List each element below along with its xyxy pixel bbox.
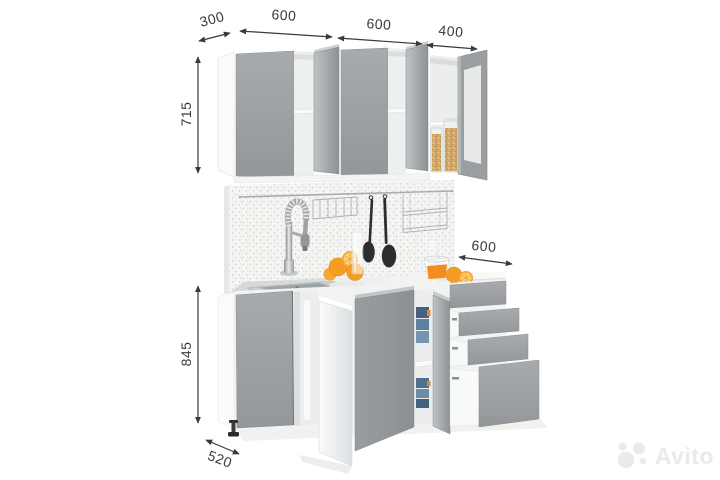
dimension-label-600a: 600 (271, 6, 297, 24)
drawer-unit (450, 279, 539, 427)
dimension-label-845: 845 (178, 342, 194, 367)
frosted-glass-panel (464, 65, 481, 164)
watermark-brand-text: Avito (655, 443, 714, 470)
drawer-2-open (459, 308, 519, 336)
wall-cabinets (218, 41, 487, 183)
arrow-width-600b (338, 38, 422, 44)
glass-cabinet-door (458, 50, 487, 180)
dimension-label-715: 715 (178, 102, 194, 127)
base-door-open-gray (355, 290, 414, 451)
dimension-label-600-counter: 600 (471, 237, 497, 255)
wall-shelf (388, 108, 406, 113)
wall-door-open-1 (314, 47, 339, 174)
wall-door-closed-2 (341, 48, 388, 176)
orange-juice (427, 264, 447, 279)
sink-cabinet-door (236, 291, 293, 428)
wall-door-open-2 (406, 44, 428, 171)
arrow-width-400 (427, 45, 477, 49)
base-door-open-white (319, 301, 352, 466)
open-shelf-side-panel (218, 52, 234, 177)
drinking-glass (352, 232, 363, 274)
dimension-label-600b: 600 (366, 15, 392, 33)
wall-shelf (294, 109, 314, 114)
kitchen-product-image: 300 600 600 400 715 845 520 600 Avito (0, 0, 720, 480)
base-side-panel (218, 292, 234, 430)
dimension-label-400: 400 (438, 22, 464, 40)
base-door-open-right (433, 295, 450, 434)
arrow-width-600a (240, 31, 332, 37)
drawer-1-closed (450, 281, 506, 308)
avito-watermark: Avito (616, 440, 714, 472)
drawer-4-open (479, 360, 539, 427)
wall-door-closed-1 (236, 51, 294, 177)
kitchen-render (0, 0, 720, 480)
arrow-counter-600 (459, 257, 512, 264)
avito-logo-icon (616, 440, 650, 472)
arrow-width-300 (199, 33, 230, 41)
